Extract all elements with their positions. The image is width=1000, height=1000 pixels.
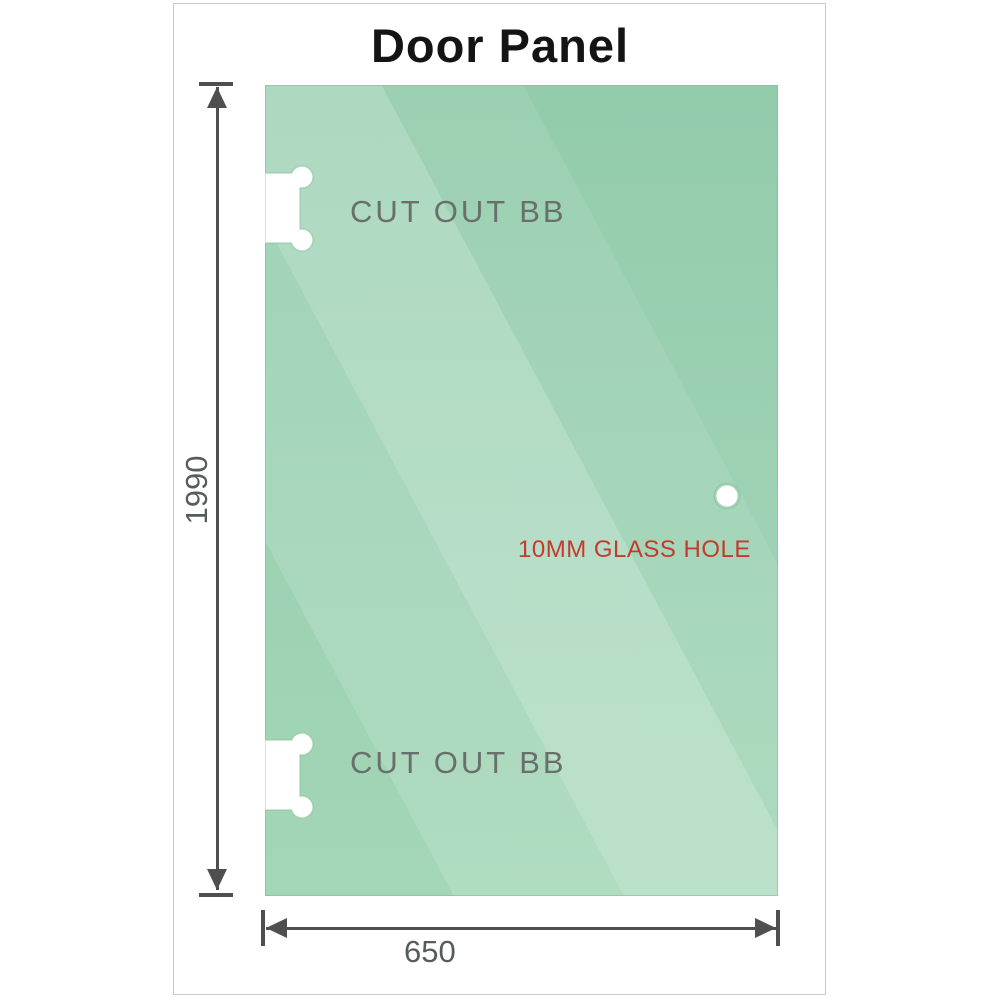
glass-hole [715,484,739,508]
glass-hole-label: 10MM GLASS HOLE [518,536,751,564]
dim-width-arrow-right-icon [755,918,776,938]
hinge-cutout-top [265,166,313,251]
door-panel-diagram: Door Panel CUT OUT BB CUT OUT BB 10MM GL… [0,0,1000,1000]
cutout-label-top: CUT OUT BB [350,194,567,230]
dim-width-arrow-left-icon [266,918,287,938]
cutout-label-bottom: CUT OUT BB [350,745,567,781]
dim-height-arrow-down-icon [207,869,227,890]
dim-height-top-tick [199,82,233,86]
dim-width-right-tick [776,910,780,946]
dim-width-value: 650 [404,936,456,968]
page-title: Door Panel [173,18,827,74]
dim-height-value: 1990 [181,420,213,560]
hinge-cutout-bottom [265,733,313,818]
dim-width-left-tick [261,910,265,946]
dim-width-line [266,927,776,930]
dim-height-line [216,87,219,890]
dim-height-bottom-tick [199,893,233,897]
dim-height-arrow-up-icon [207,87,227,108]
